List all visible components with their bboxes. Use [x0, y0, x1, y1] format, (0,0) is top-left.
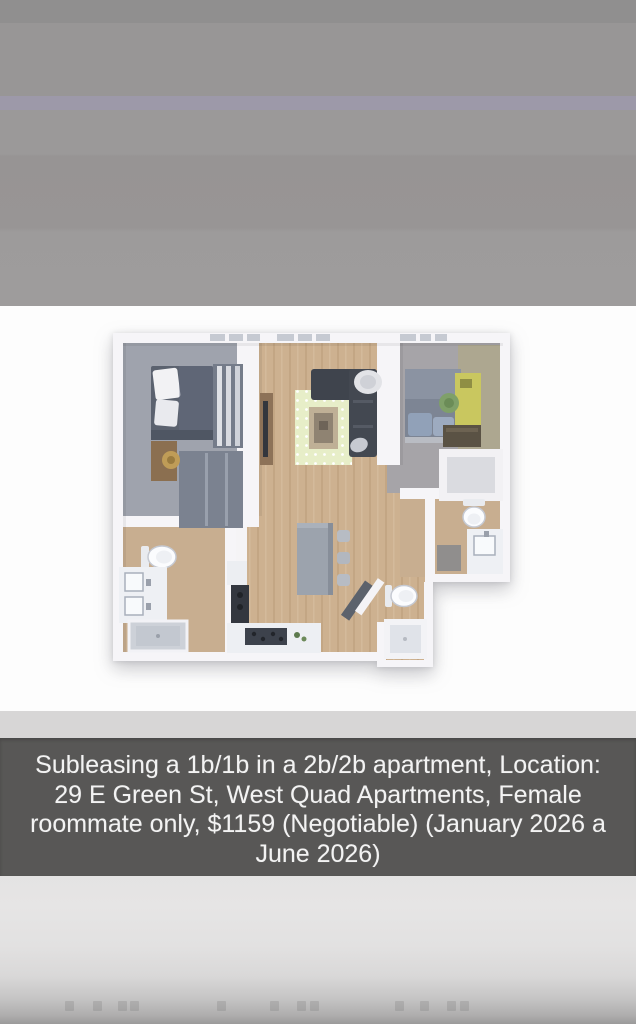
blur-artifact — [447, 1001, 456, 1011]
wardrobe-right — [443, 425, 481, 447]
rug — [295, 390, 352, 465]
blur-artifact — [118, 1001, 127, 1011]
top-gray-band-dark — [0, 0, 636, 23]
caption-line-2: 29 E Green St, West Quad Apartments, Fem… — [54, 781, 582, 809]
bottom-gray-area — [0, 876, 636, 1024]
closet-right — [439, 449, 503, 501]
blur-artifact — [93, 1001, 102, 1011]
kitchen-island — [297, 523, 350, 595]
purple-accent-band — [0, 96, 636, 110]
blur-artifact — [395, 1001, 404, 1011]
caption-line-4: June 2026) — [255, 840, 380, 868]
blur-artifact — [65, 1001, 74, 1011]
blur-artifact — [217, 1001, 226, 1011]
shower-left — [129, 621, 187, 651]
toilet-right — [463, 499, 485, 527]
bath-door-shadow — [437, 545, 461, 571]
caption-line-3: roommate only, $1159 (Negotiable) (Janua… — [30, 810, 606, 838]
top-gray-band — [0, 23, 636, 96]
floor-plan-image — [113, 333, 513, 668]
vanity-right — [467, 529, 503, 574]
wardrobe-left — [213, 364, 243, 448]
pre-caption-band — [0, 711, 636, 738]
blur-artifact — [420, 1001, 429, 1011]
desk-left — [151, 441, 180, 481]
shower-entry — [384, 619, 427, 659]
blur-artifact — [460, 1001, 469, 1011]
blur-artifact — [297, 1001, 306, 1011]
blur-artifact — [270, 1001, 279, 1011]
vanity-left — [119, 567, 167, 623]
blur-artifact — [310, 1001, 319, 1011]
photo-area — [0, 306, 636, 711]
caption-text: Subleasing a 1b/1b in a 2b/2b apartment,… — [0, 738, 636, 869]
toilet-left — [141, 546, 176, 569]
windows — [210, 334, 447, 341]
caption-box: Subleasing a 1b/1b in a 2b/2b apartment,… — [0, 738, 636, 876]
tv-console — [260, 393, 273, 465]
bed-left — [151, 366, 213, 440]
toilet-entry — [385, 585, 417, 607]
top-gray-band-lower — [0, 110, 636, 306]
blur-artifact — [130, 1001, 139, 1011]
caption-line-1: Subleasing a 1b/1b in a 2b/2b apartment,… — [35, 751, 601, 779]
dresser-left — [179, 451, 243, 528]
screenshot: Subleasing a 1b/1b in a 2b/2b apartment,… — [0, 0, 636, 1024]
